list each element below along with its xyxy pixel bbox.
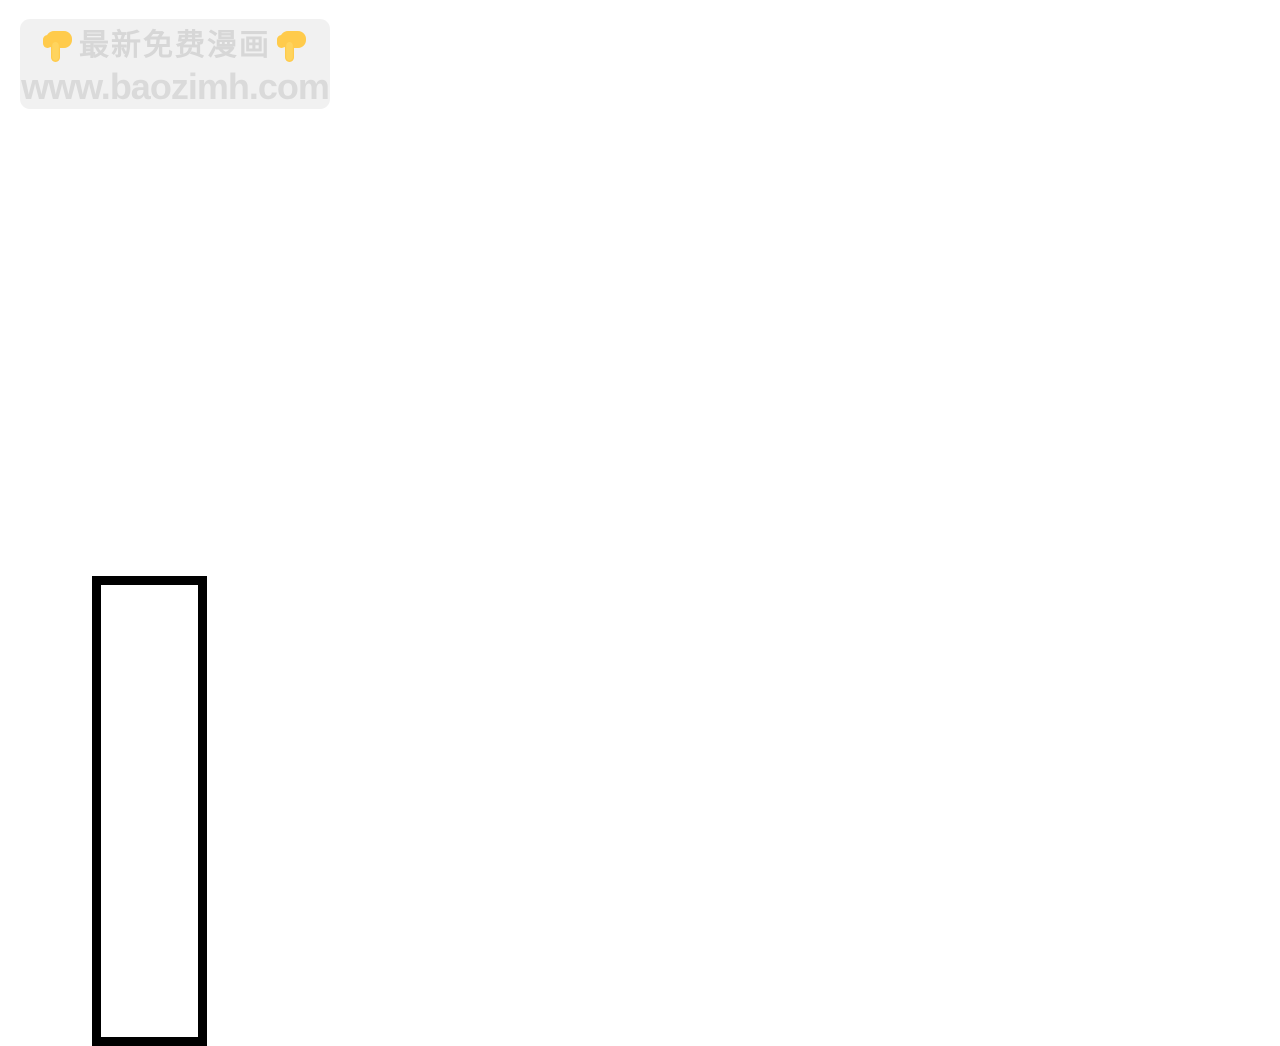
watermark-title-row: 最新免费漫画 (40, 25, 310, 67)
pointing-down-emoji-icon (40, 28, 76, 64)
watermark-title: 最新免费漫画 (79, 31, 271, 61)
watermark-site-url: www.baozimh.com (21, 69, 329, 105)
comic-panel-outline (92, 576, 207, 1046)
pointing-down-emoji-icon (274, 28, 310, 64)
watermark-badge: 最新免费漫画 www.baozimh.com (20, 19, 330, 109)
comic-page: { "page": { "type": "comic-reader-page",… (0, 0, 1280, 1000)
